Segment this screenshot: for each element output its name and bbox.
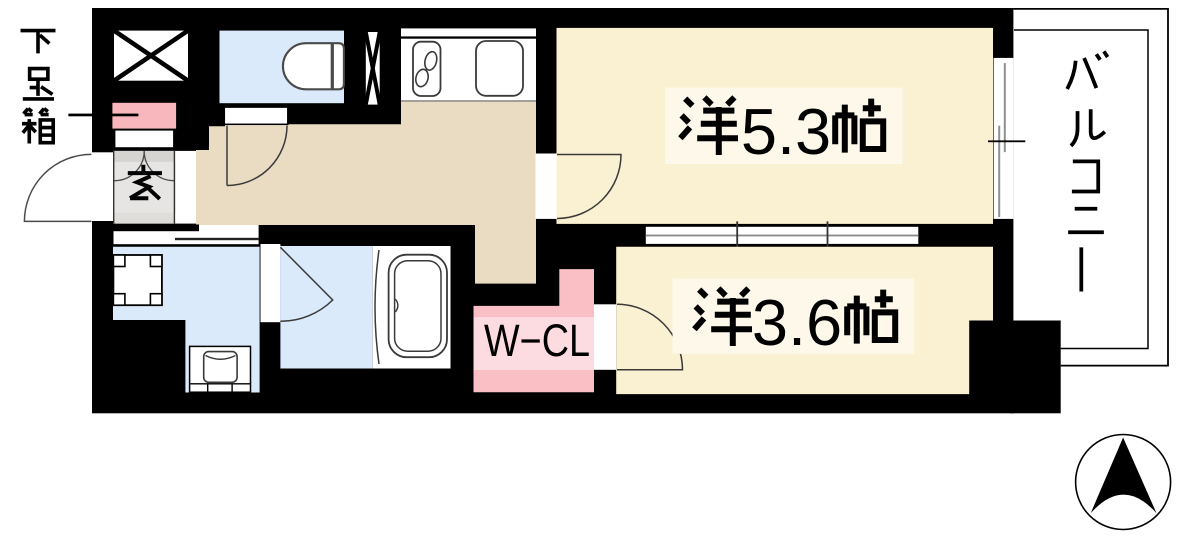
svg-text:5.3: 5.3 — [741, 95, 831, 168]
svg-text:W−CL: W−CL — [484, 315, 590, 366]
svg-text:3.6: 3.6 — [752, 286, 842, 359]
